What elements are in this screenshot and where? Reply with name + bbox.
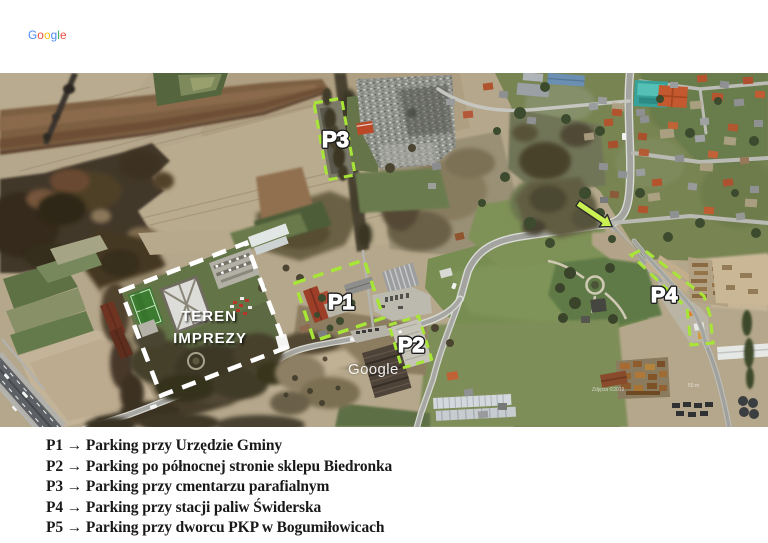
svg-text:P1: P1 [328,290,354,314]
svg-text:P4: P4 [651,283,677,307]
svg-text:Zdjęcia ©2019: Zdjęcia ©2019 [592,386,625,393]
svg-text:TEREN: TEREN [181,308,237,325]
svg-text:IMPREZY: IMPREZY [173,330,247,347]
svg-text:Google: Google [348,361,399,378]
svg-text:P2: P2 [398,333,424,357]
svg-text:50 m: 50 m [688,383,699,389]
svg-text:P3: P3 [322,127,349,152]
